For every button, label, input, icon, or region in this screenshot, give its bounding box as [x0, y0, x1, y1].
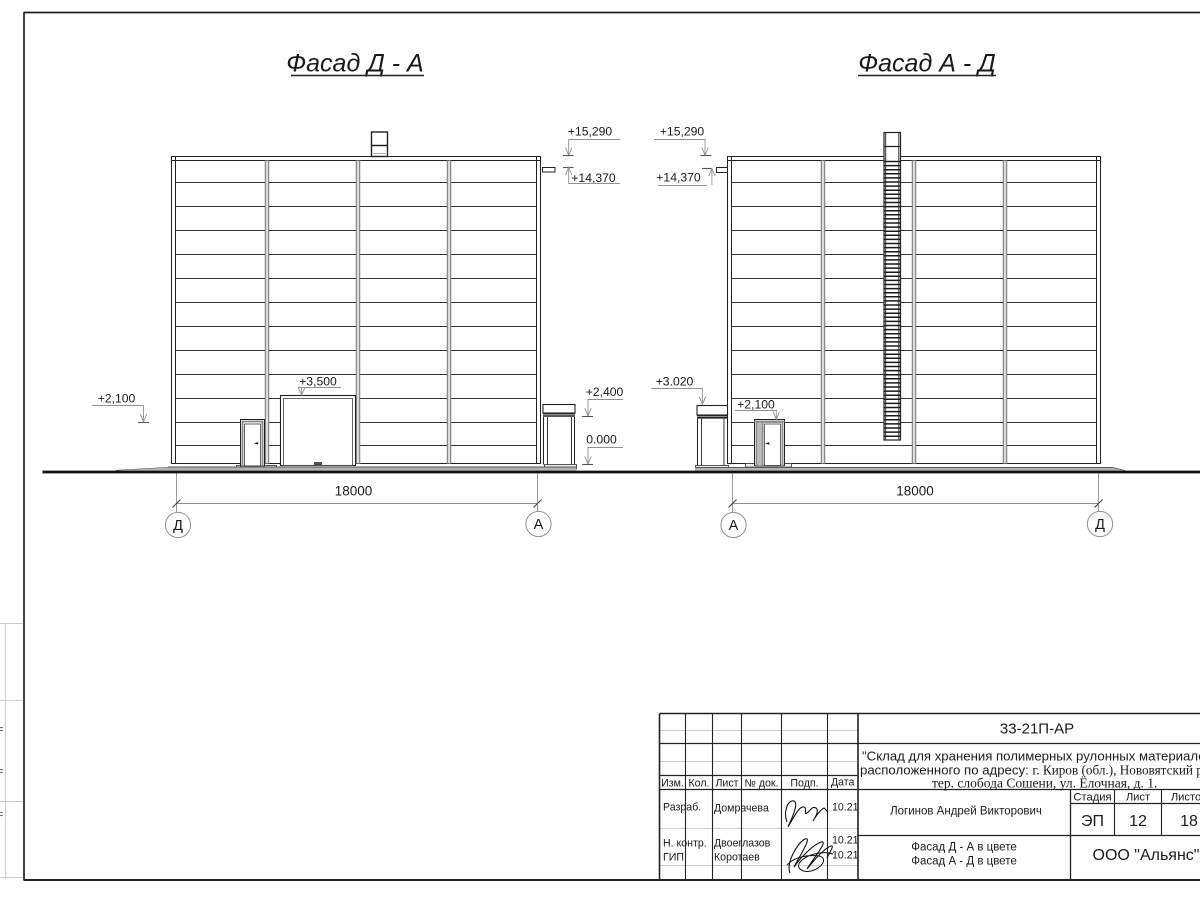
- svg-text:18000: 18000: [896, 484, 934, 499]
- svg-text:+3,500: +3,500: [299, 374, 337, 388]
- svg-text:+2,100: +2,100: [98, 392, 136, 406]
- svg-text:+2,400: +2,400: [586, 385, 624, 399]
- svg-text:тер. слобода Сошени, ул. Ёлочн: тер. слобода Сошени, ул. Ёлочная, д. 1.: [932, 776, 1157, 791]
- svg-text:ООО "Альянс": ООО "Альянс": [1093, 847, 1200, 864]
- svg-text:Фасад Д - А: Фасад Д - А: [286, 50, 423, 78]
- svg-text:Изм.: Изм.: [661, 778, 684, 790]
- svg-text:+2,100: +2,100: [737, 397, 775, 411]
- svg-text:Н. контр.: Н. контр.: [663, 838, 707, 850]
- svg-text:№ док.: № док.: [745, 778, 779, 790]
- svg-text:+15,290: +15,290: [568, 125, 613, 139]
- svg-text:Фасад А - Д в цвете: Фасад А - Д в цвете: [911, 856, 1016, 868]
- svg-text:10.21: 10.21: [832, 850, 859, 862]
- svg-text:Домрачева: Домрачева: [714, 803, 769, 815]
- svg-text:Лист: Лист: [1126, 792, 1150, 804]
- svg-text:+15,290: +15,290: [660, 125, 705, 139]
- svg-text:Д: Д: [1095, 517, 1105, 533]
- svg-text:Дата: Дата: [831, 777, 855, 789]
- svg-text:10.21: 10.21: [832, 835, 859, 847]
- svg-text:Разраб.: Разраб.: [663, 802, 701, 814]
- svg-text:33-21П-АР: 33-21П-АР: [1000, 721, 1074, 738]
- svg-text:18: 18: [1180, 813, 1198, 830]
- svg-text:0.000: 0.000: [586, 433, 617, 447]
- svg-text:Фасад А - Д: Фасад А - Д: [858, 50, 995, 78]
- svg-text:Кол.: Кол.: [689, 778, 710, 790]
- svg-text:Фасад Д - А в цвете: Фасад Д - А в цвете: [911, 842, 1016, 854]
- svg-text:А: А: [729, 518, 739, 534]
- svg-text:Лист: Лист: [715, 778, 738, 790]
- svg-text:Подп.: Подп.: [790, 778, 818, 790]
- svg-text:"Склад для хранения полимерных: "Склад для хранения полимерных рулонных …: [862, 749, 1200, 764]
- svg-text:+3.020: +3.020: [656, 375, 694, 389]
- svg-text:ЭП: ЭП: [1081, 813, 1104, 830]
- svg-text:Двоеглазов: Двоеглазов: [714, 838, 771, 850]
- svg-text:Листов: Листов: [1171, 792, 1200, 804]
- svg-text:А: А: [534, 517, 544, 533]
- svg-text:+14,370: +14,370: [656, 171, 701, 185]
- svg-text:Логинов Андрей Викторович: Логинов Андрей Викторович: [890, 806, 1042, 818]
- svg-text:18000: 18000: [335, 484, 373, 499]
- svg-text:10.21: 10.21: [832, 802, 859, 814]
- svg-text:Стадия: Стадия: [1073, 792, 1111, 804]
- svg-text:ГИП: ГИП: [663, 852, 684, 864]
- svg-text:12: 12: [1129, 813, 1147, 830]
- svg-text:Коротаев: Коротаев: [714, 852, 760, 864]
- svg-text:Д: Д: [173, 518, 183, 534]
